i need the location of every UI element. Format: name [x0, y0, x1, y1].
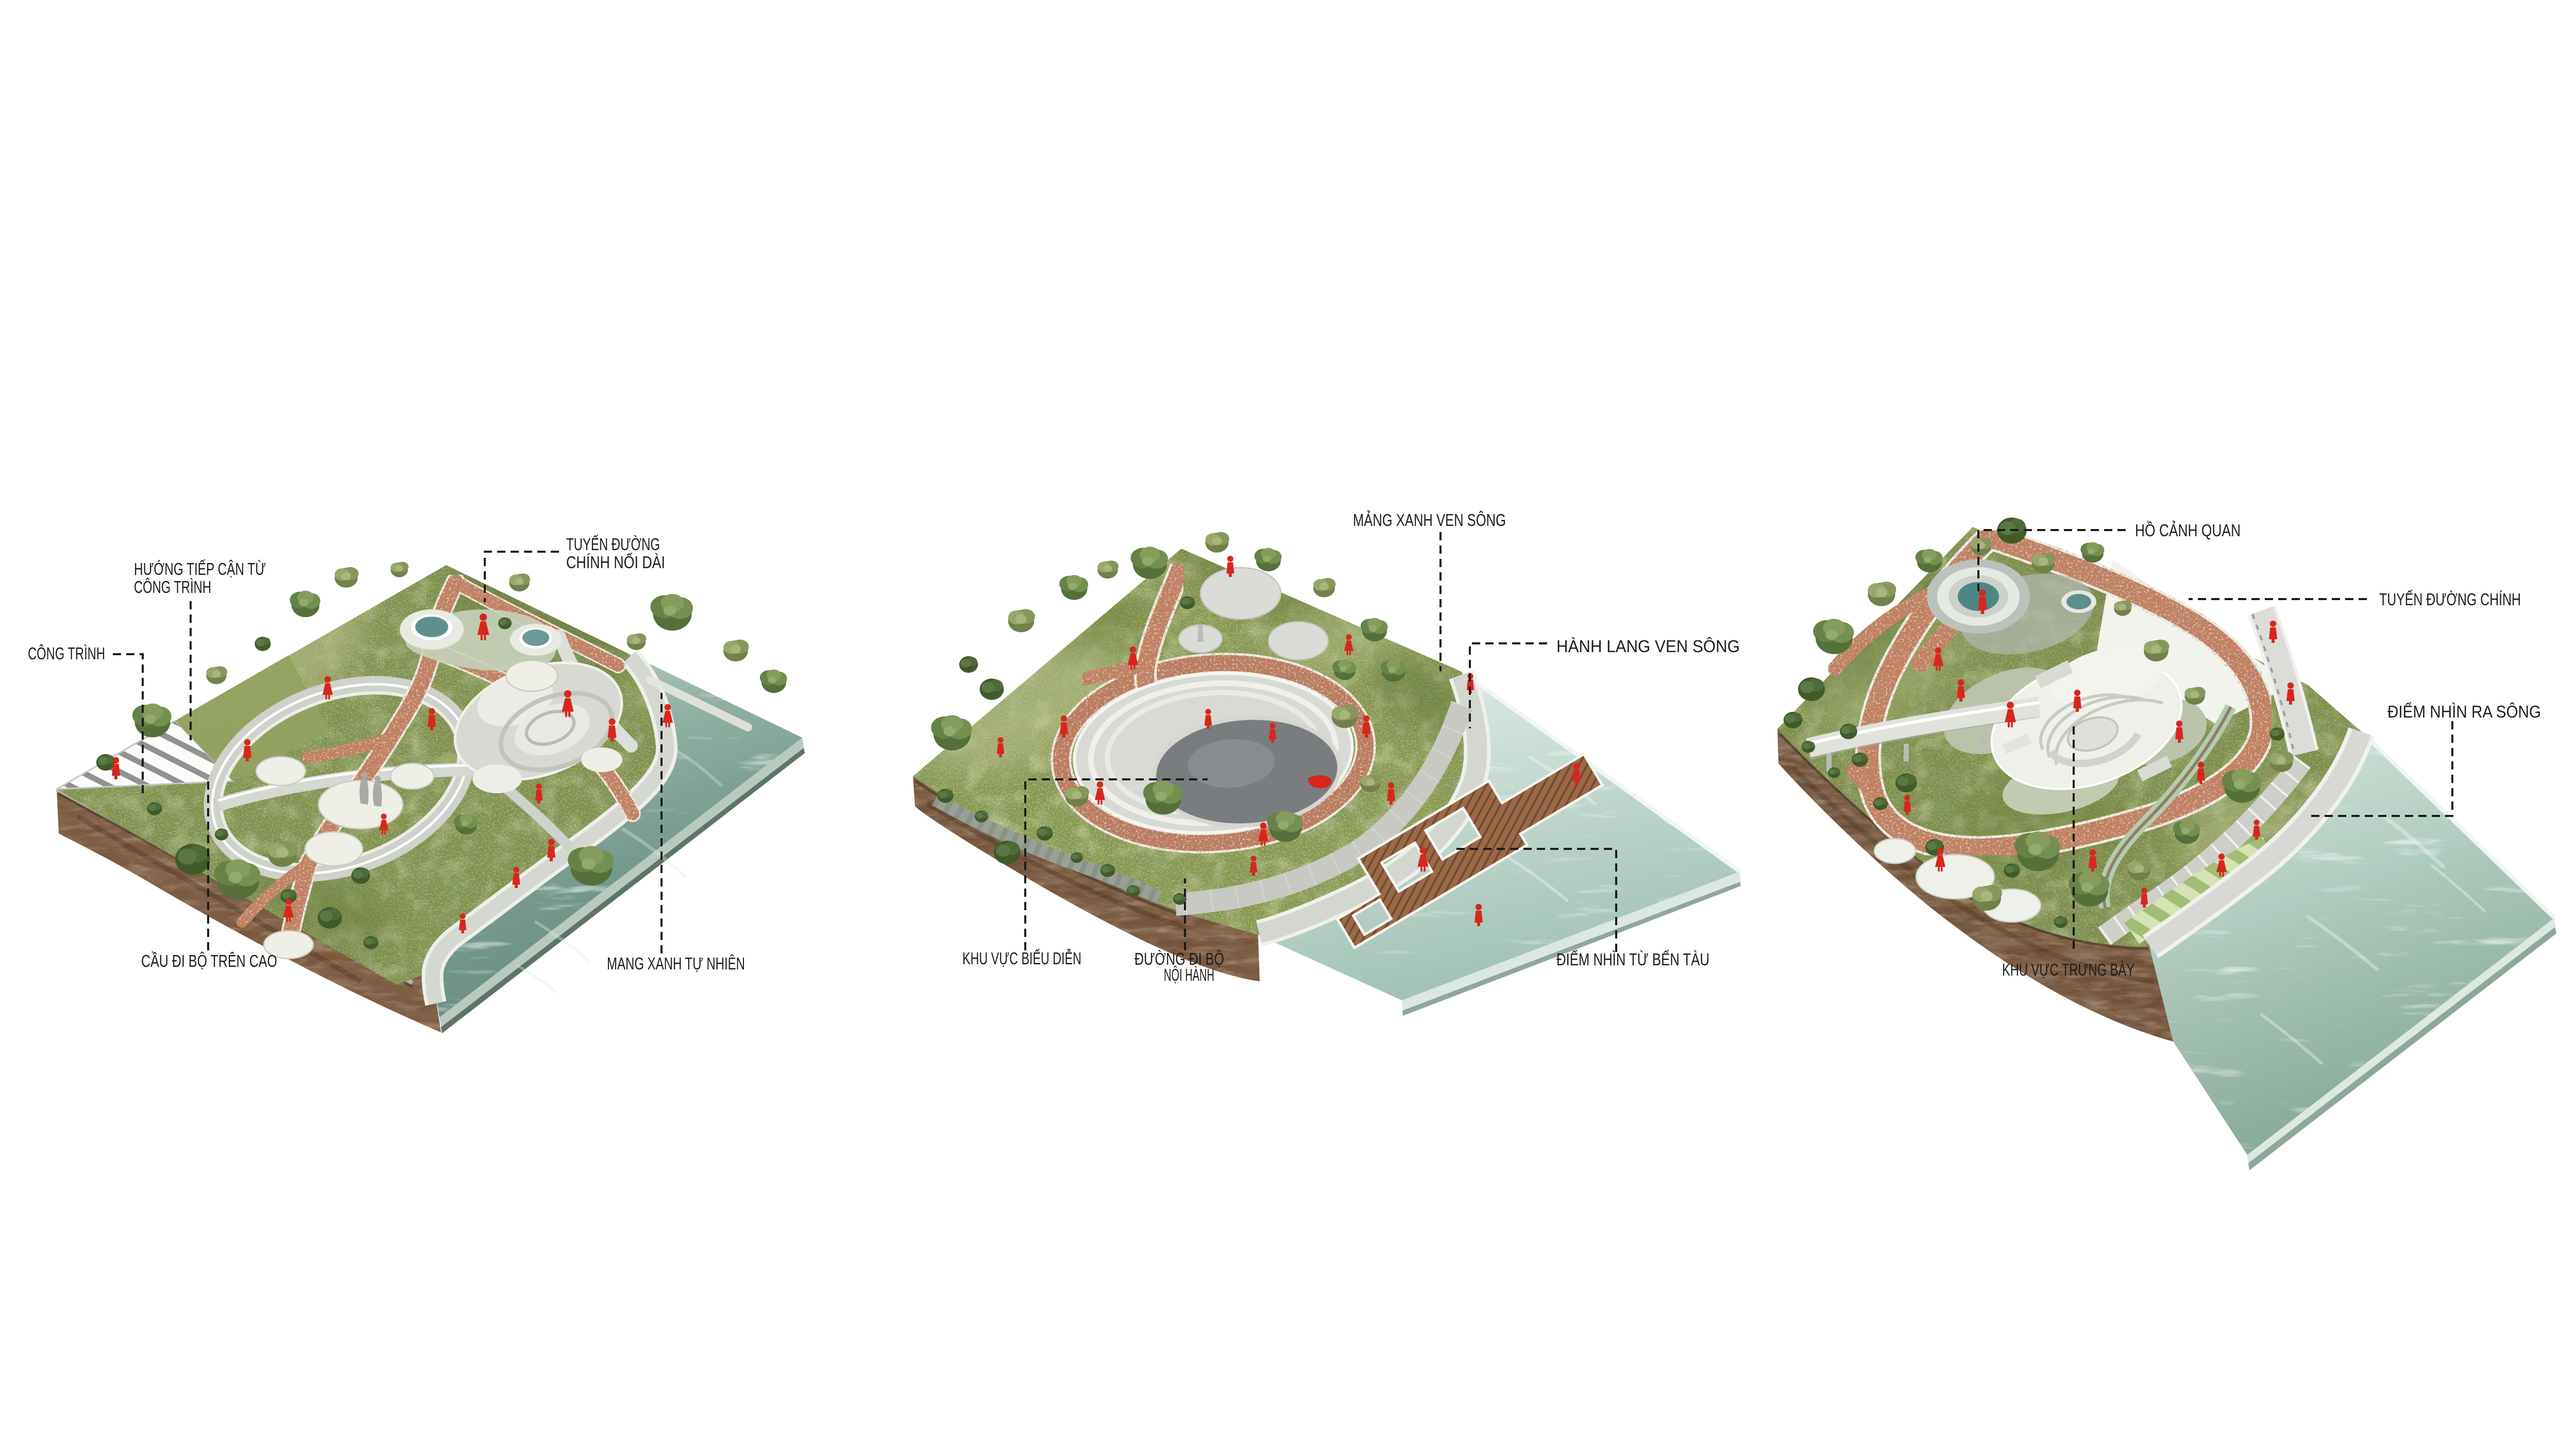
svg-text:CÔNG TRÌNH: CÔNG TRÌNH [134, 577, 211, 596]
svg-text:NỘI HÀNH: NỘI HÀNH [1164, 965, 1214, 984]
svg-text:KHU VỰC TRƯNG BÀY: KHU VỰC TRƯNG BÀY [2002, 960, 2134, 979]
svg-text:TUYẾN ĐƯỜNG CHÍNH: TUYẾN ĐƯỜNG CHÍNH [2379, 590, 2521, 609]
svg-text:MANG XANH TỰ NHIÊN: MANG XANH TỰ NHIÊN [607, 954, 745, 973]
svg-text:HƯỚNG TIẾP CẬN TỪ: HƯỚNG TIẾP CẬN TỪ [134, 559, 266, 578]
svg-text:HỒ CẢNH QUAN: HỒ CẢNH QUAN [2135, 521, 2241, 540]
svg-text:CẦU ĐI BỘ TRÊN CAO: CẦU ĐI BỘ TRÊN CAO [141, 951, 277, 970]
svg-text:HÀNH LANG VEN SÔNG: HÀNH LANG VEN SÔNG [1556, 637, 1740, 656]
svg-text:CÔNG TRÌNH: CÔNG TRÌNH [28, 644, 105, 663]
svg-text:ĐIỂM NHÌN TỪ BẾN TÀU: ĐIỂM NHÌN TỪ BẾN TÀU [1556, 950, 1709, 969]
svg-text:MẢNG XANH VEN SÔNG: MẢNG XANH VEN SÔNG [1353, 510, 1506, 530]
svg-text:KHU VỰC BIỂU DIỄN: KHU VỰC BIỂU DIỄN [962, 949, 1081, 968]
svg-text:TUYẾN ĐƯỜNG: TUYẾN ĐƯỜNG [566, 535, 660, 554]
svg-text:ĐIỂM NHÌN RA SÔNG: ĐIỂM NHÌN RA SÔNG [2387, 702, 2541, 721]
svg-text:CHÍNH NỐI DÀI: CHÍNH NỐI DÀI [566, 552, 665, 572]
